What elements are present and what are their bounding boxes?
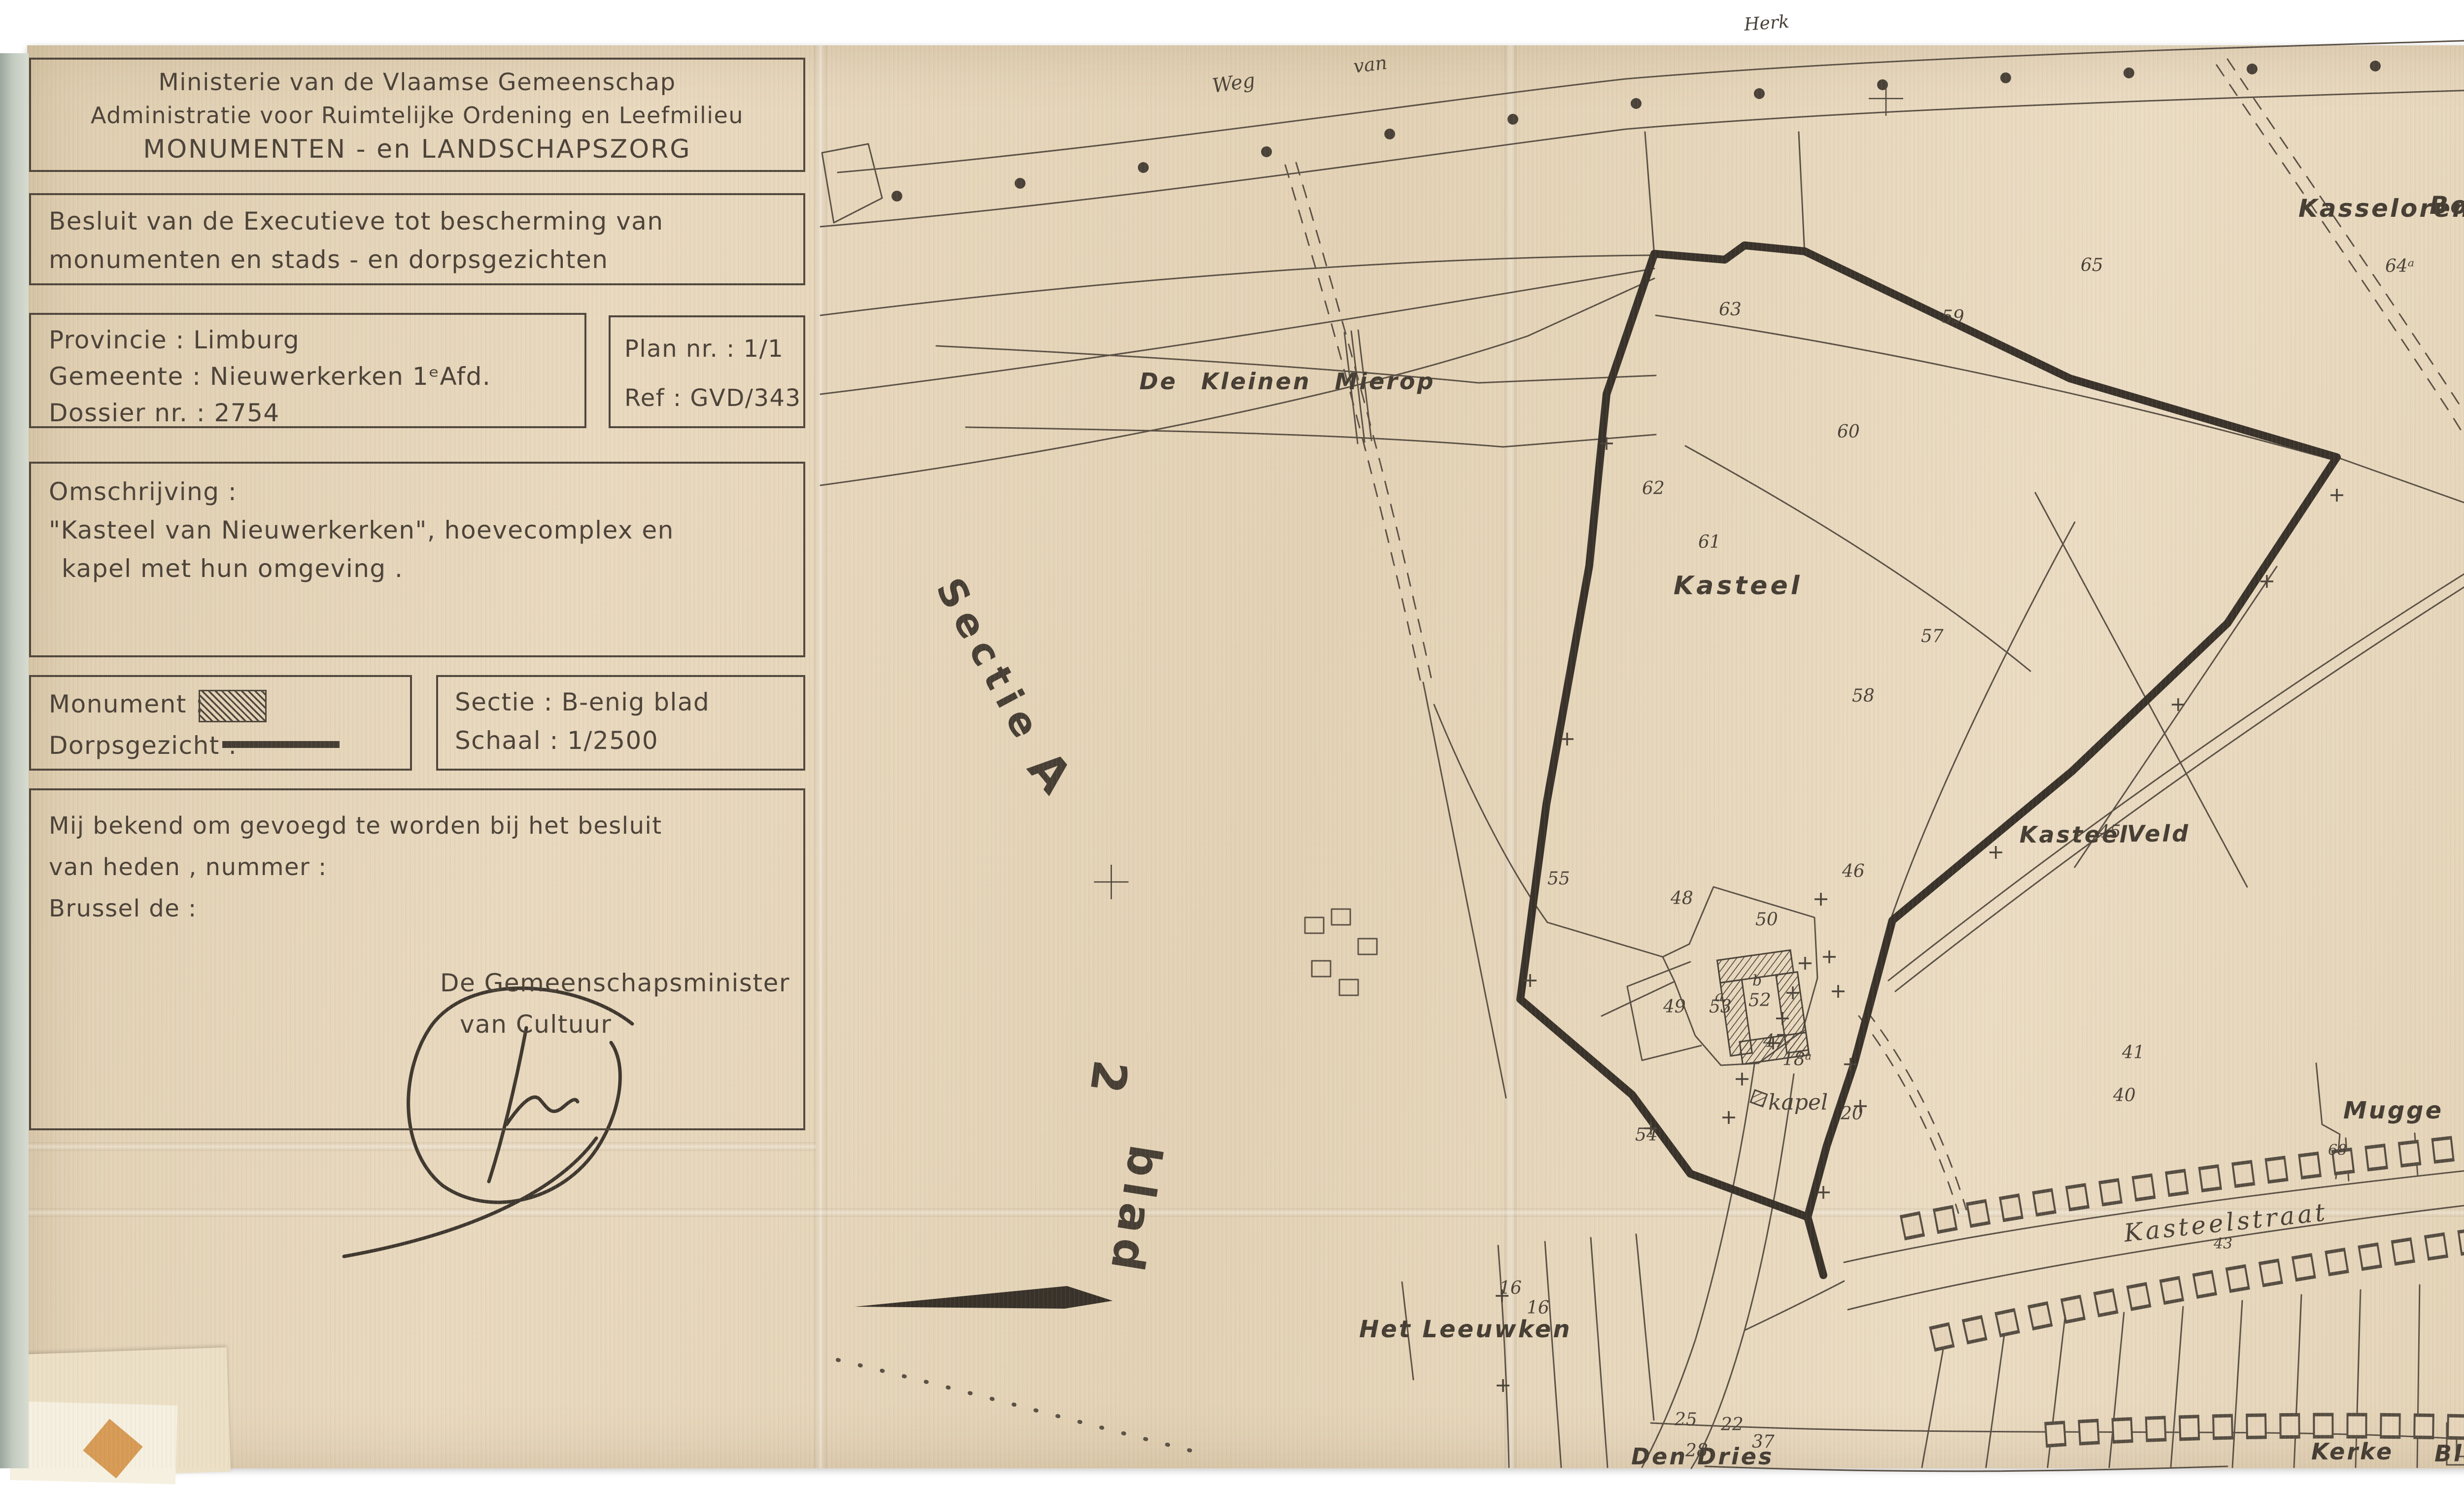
map-label-kasteel: Kasteel	[1674, 571, 1803, 601]
parcel-number: 40	[2113, 1085, 2136, 1106]
parcel-number: 28	[1685, 1441, 1708, 1461]
parcel-number: 43	[2213, 1235, 2232, 1252]
parcel-letter: a	[1715, 988, 1724, 1005]
dossier-number-line: Dossier nr. : 2754	[49, 399, 280, 427]
registration-cross	[1094, 81, 1903, 899]
administration-line: Administratie voor Ruimtelijke Ordening …	[31, 102, 803, 129]
sheet-label-a: A	[1017, 741, 1082, 804]
decree-line2: monumenten en stads - en dorpsgezichten	[49, 245, 608, 274]
map-label-het-leeuwken: Het Leeuwken	[1359, 1316, 1572, 1343]
map-label-herk: Herk	[1743, 12, 1790, 35]
sheet-label-sectie: Sectie	[927, 571, 1051, 752]
signatory-title-line1: De Gemeenschapsminister	[440, 969, 790, 997]
dashed-paths	[1285, 59, 2464, 1213]
description-line1: "Kasteel van Nieuwerkerken", hoevecomple…	[49, 516, 674, 544]
parcel-number: 60	[1837, 422, 1860, 442]
description-box: Omschrijving : "Kasteel van Nieuwerkerke…	[29, 462, 805, 657]
chapel-hatched-building	[1750, 1090, 1767, 1106]
parcel-number: 62	[1642, 478, 1665, 499]
parcel-number: 58	[1852, 686, 1875, 706]
parcel-number: 49	[1663, 997, 1686, 1017]
province-line: Provincie : Limburg	[49, 326, 300, 354]
ministry-line: Ministerie van de Vlaamse Gemeenschap	[31, 68, 803, 96]
parcel-number: 41	[2122, 1043, 2145, 1063]
map-label-bosch: Bosch	[2430, 191, 2464, 220]
parcel-number: 68	[2328, 1142, 2347, 1159]
map-label-kleinen-mierop: De Kleinen Mierop	[1139, 368, 1435, 395]
parcel-number: 18ᵃ	[1782, 1049, 1812, 1070]
parcel-letter: b	[1752, 972, 1762, 989]
parcel-number: 37	[1752, 1432, 1775, 1452]
header-box: Ministerie van de Vlaamse Gemeenschap Ad…	[29, 58, 805, 172]
legend-box: Monument : Dorpsgezicht :	[29, 675, 412, 771]
sectie-line: Sectie : B-enig blad	[455, 688, 710, 716]
tree-row-dots	[891, 55, 2464, 202]
annex-line2: van heden , nummer :	[49, 853, 327, 881]
annex-line1: Mij bekend om gevoegd te worden bij het …	[49, 812, 662, 840]
parcel-number: 52	[1748, 990, 1771, 1011]
dorpsgezicht-line-swatch	[222, 741, 340, 748]
parcel-number: 63	[1719, 300, 1742, 320]
map-label-mugge-boschken: Mugge Boschken	[2343, 1097, 2464, 1124]
plan-ref-line: Ref : GVD/343	[624, 384, 801, 412]
description-label: Omschrijving :	[49, 477, 237, 506]
map-label-weg: Weg	[1211, 69, 1257, 98]
parcel-number: 57	[1921, 626, 1944, 646]
dossier-box: Provincie : Limburg Gemeente : Nieuwerke…	[29, 313, 586, 428]
parcel-number: 48	[1670, 888, 1693, 909]
legend-monument-label: Monument :	[49, 690, 205, 718]
parcel-number: 16	[1499, 1278, 1522, 1298]
parcel-number: 45	[2098, 822, 2121, 842]
dotted-road-edge	[838, 1360, 1202, 1454]
sheet-label-2: 2	[1079, 1057, 1137, 1097]
parcel-number: 22	[1720, 1415, 1744, 1435]
sheet-label-blad: blad	[1099, 1142, 1171, 1281]
protection-boundary	[1520, 245, 2337, 1275]
description-line2: kapel met hun omgeving .	[62, 554, 403, 583]
map-label-kapel: kapel	[1768, 1090, 1828, 1115]
parcel-number: 46	[1842, 861, 1865, 881]
sheet-box: Sectie : B-enig blad Schaal : 1/2500	[436, 675, 805, 771]
signatory-title-line2: van Cultuur	[460, 1010, 612, 1039]
parcel-number: 65	[2081, 255, 2103, 275]
scale-arrow	[855, 1286, 1113, 1309]
parcel-number: 25	[1674, 1410, 1697, 1430]
monumenten-line: MONUMENTEN - en LANDSCHAPSZORG	[31, 135, 803, 164]
parcel-number: 59	[1942, 307, 1964, 327]
parcel-number: 16	[1527, 1298, 1549, 1318]
monument-hatch-swatch	[199, 690, 267, 722]
scanner-edge-left	[0, 53, 29, 1468]
parcel-number: 64ᵃ	[2385, 256, 2414, 276]
scanned-protection-plan: Kasseloren Bosch De Kleinen Mierop Kaste…	[0, 0, 2464, 1489]
parcel-number: 47	[1763, 1031, 1786, 1051]
map-label-blank: Blank	[2434, 1440, 2464, 1467]
map-label-van: van	[1352, 52, 1388, 77]
parcel-number: 54	[1635, 1125, 1658, 1145]
schaal-line: Schaal : 1/2500	[455, 726, 658, 755]
map-label-kerke: Kerke	[2311, 1438, 2394, 1465]
plan-box: Plan nr. : 1/1 Ref : GVD/343	[609, 315, 805, 428]
annex-box: Mij bekend om gevoegd te worden bij het …	[29, 788, 805, 1130]
legend-dorpsgezicht-label: Dorpsgezicht :	[49, 731, 238, 760]
parcel-number: 20	[1840, 1104, 1863, 1124]
parcel-number: 61	[1698, 532, 1721, 552]
decree-line1: Besluit van de Executieve tot beschermin…	[49, 207, 664, 236]
annex-line3: Brussel de :	[49, 895, 197, 922]
decree-box: Besluit van de Executieve tot beschermin…	[29, 193, 805, 285]
plan-number-line: Plan nr. : 1/1	[624, 335, 784, 363]
parcel-number: 55	[1547, 869, 1570, 889]
map-label-kasteel-veld-2: Veld	[2127, 820, 2190, 847]
municipality-line: Gemeente : Nieuwerkerken 1ᵉAfd.	[49, 362, 491, 391]
parcel-number: 50	[1755, 910, 1778, 930]
